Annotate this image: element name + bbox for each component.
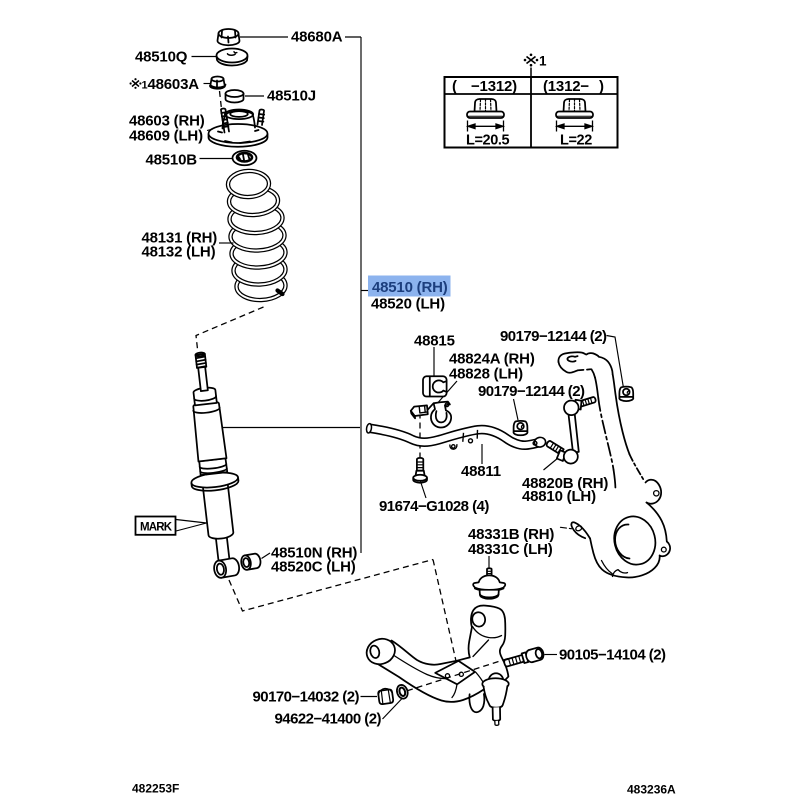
svg-text:90179−12144 (2): 90179−12144 (2) <box>500 328 607 345</box>
svg-text:48510B: 48510B <box>146 152 198 169</box>
svg-text:48510 (RH): 48510 (RH) <box>372 279 448 296</box>
svg-text:48810 (LH): 48810 (LH) <box>522 488 596 505</box>
svg-text:48520 (LH): 48520 (LH) <box>371 296 445 313</box>
svg-text:L=22: L=22 <box>560 133 592 149</box>
svg-text:): ) <box>599 78 604 95</box>
svg-text:90179−12144 (2): 90179−12144 (2) <box>478 383 585 400</box>
svg-text:−1312): −1312) <box>471 78 517 95</box>
svg-text:48520C (LH): 48520C (LH) <box>271 559 356 576</box>
svg-text:(1312−: (1312− <box>543 78 589 95</box>
svg-text:482253F: 482253F <box>132 782 179 796</box>
svg-text:48815: 48815 <box>414 333 455 350</box>
svg-text:94622−41400 (2): 94622−41400 (2) <box>275 711 382 728</box>
svg-text:48828 (LH): 48828 (LH) <box>449 366 523 383</box>
svg-text:90170−14032 (2): 90170−14032 (2) <box>253 689 360 706</box>
svg-text:48510J: 48510J <box>267 88 316 105</box>
svg-text:48132 (LH): 48132 (LH) <box>142 244 216 261</box>
svg-text:L=20.5: L=20.5 <box>466 133 509 149</box>
svg-text:(: ( <box>452 78 457 95</box>
svg-text:MARK: MARK <box>140 522 173 534</box>
svg-text:1: 1 <box>539 54 547 69</box>
svg-text:48331C (LH): 48331C (LH) <box>468 541 553 558</box>
svg-text:90105−14104 (2): 90105−14104 (2) <box>559 647 666 664</box>
svg-text:48603A: 48603A <box>148 76 200 93</box>
svg-text:91674−G1028 (4): 91674−G1028 (4) <box>379 498 489 515</box>
svg-text:48510Q: 48510Q <box>135 49 188 66</box>
svg-text:48609 (LH): 48609 (LH) <box>129 128 203 145</box>
svg-text:48680A: 48680A <box>291 29 343 46</box>
svg-text:48811: 48811 <box>461 463 501 480</box>
svg-text:483236A: 483236A <box>627 783 676 797</box>
